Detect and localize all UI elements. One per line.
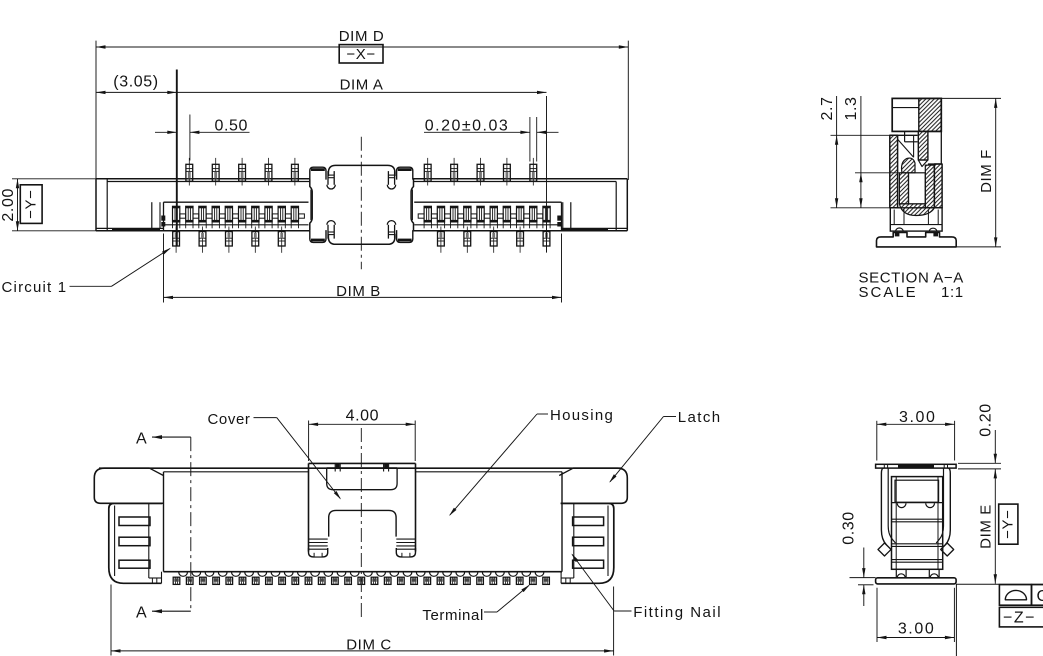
svg-text:0.50: 0.50 — [215, 117, 249, 134]
svg-text:Housing: Housing — [550, 407, 614, 424]
svg-text:Fitting Nail: Fitting Nail — [633, 604, 722, 621]
svg-text:−Z−: −Z− — [1003, 610, 1036, 627]
svg-text:A: A — [136, 431, 147, 448]
svg-text:(3.05): (3.05) — [113, 74, 158, 91]
svg-text:0.20±0.03: 0.20±0.03 — [425, 117, 510, 134]
svg-text:2.00: 2.00 — [0, 188, 17, 222]
svg-text:2.7: 2.7 — [819, 96, 836, 120]
svg-text:−X−: −X− — [346, 46, 375, 63]
svg-text:Terminal: Terminal — [422, 607, 483, 624]
svg-text:C: C — [1037, 588, 1043, 605]
svg-text:0.20: 0.20 — [977, 403, 994, 437]
svg-text:−Y−: −Y− — [23, 190, 40, 219]
svg-text:1:1: 1:1 — [941, 284, 964, 301]
svg-text:Latch: Latch — [678, 409, 722, 426]
svg-text:DIM C: DIM C — [346, 637, 392, 654]
svg-text:SCALE: SCALE — [859, 284, 918, 301]
svg-text:Circuit 1: Circuit 1 — [2, 279, 68, 296]
svg-text:A: A — [136, 605, 147, 622]
svg-text:DIM B: DIM B — [336, 283, 381, 300]
svg-text:Cover: Cover — [208, 411, 251, 428]
svg-text:3.00: 3.00 — [899, 409, 937, 426]
svg-text:DIM E: DIM E — [977, 504, 994, 549]
svg-text:DIM D: DIM D — [339, 28, 385, 45]
svg-text:4.00: 4.00 — [346, 408, 380, 425]
svg-text:3.00: 3.00 — [898, 621, 936, 638]
svg-text:−Y−: −Y− — [1000, 510, 1017, 539]
svg-text:0.30: 0.30 — [841, 511, 858, 545]
svg-text:DIM A: DIM A — [340, 77, 384, 94]
svg-text:DIM F: DIM F — [978, 149, 995, 193]
svg-text:1.3: 1.3 — [843, 96, 860, 120]
